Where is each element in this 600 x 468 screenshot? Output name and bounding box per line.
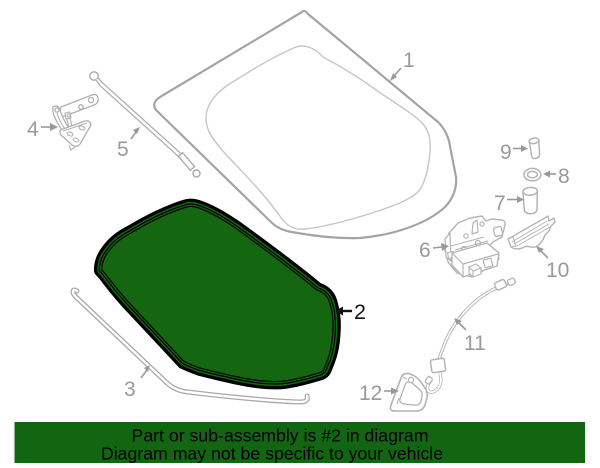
- svg-text:1: 1: [403, 49, 415, 72]
- svg-text:Diagram may not be specific to: Diagram may not be specific to your vehi…: [101, 444, 443, 464]
- svg-text:10: 10: [546, 259, 569, 282]
- svg-text:8: 8: [558, 165, 570, 188]
- svg-text:3: 3: [124, 378, 136, 401]
- svg-text:6: 6: [419, 239, 431, 262]
- svg-text:7: 7: [494, 192, 506, 215]
- svg-text:5: 5: [117, 138, 129, 161]
- svg-text:Part or sub-assembly is #2 in: Part or sub-assembly is #2 in diagram: [132, 426, 429, 446]
- svg-text:9: 9: [500, 141, 512, 164]
- svg-text:4: 4: [27, 118, 39, 141]
- svg-text:11: 11: [464, 332, 486, 355]
- svg-text:2: 2: [354, 300, 366, 324]
- svg-text:12: 12: [359, 382, 382, 405]
